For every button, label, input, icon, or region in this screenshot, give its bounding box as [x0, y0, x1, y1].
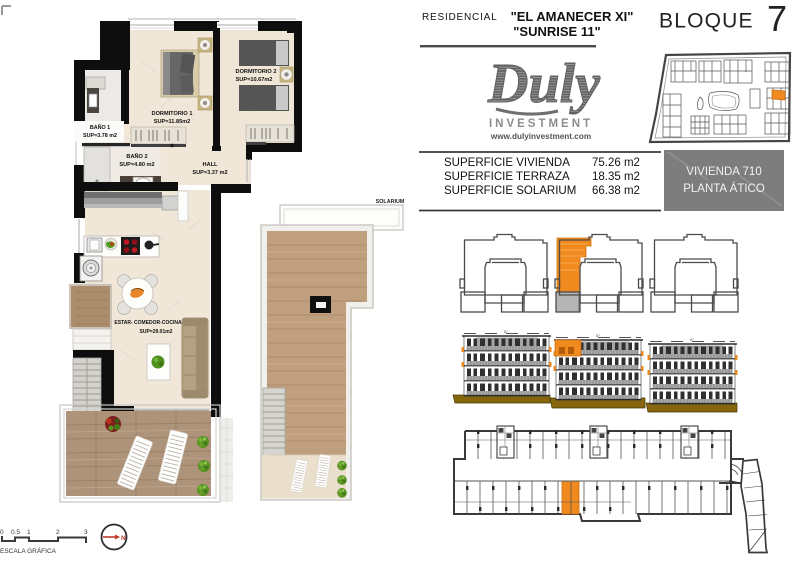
- svg-text:1: 1: [27, 529, 31, 536]
- svg-text:BAÑO 2: BAÑO 2: [126, 153, 147, 160]
- svg-text:18.35 m2: 18.35 m2: [592, 171, 640, 183]
- svg-text:SUPERFICIE TERRAZA: SUPERFICIE TERRAZA: [444, 171, 570, 183]
- svg-text:B7: B7: [690, 338, 694, 342]
- svg-text:2: 2: [56, 529, 60, 536]
- svg-text:B7: B7: [504, 330, 508, 334]
- svg-text:SUP=11.85m2: SUP=11.85m2: [154, 119, 191, 125]
- svg-text:RESIDENCIAL: RESIDENCIAL: [422, 12, 498, 23]
- svg-text:0: 0: [0, 529, 4, 536]
- svg-text:SOLARIUM: SOLARIUM: [376, 199, 405, 205]
- svg-text:DORMITORIO 1: DORMITORIO 1: [152, 111, 193, 117]
- svg-text:SUP=29.01m2: SUP=29.01m2: [140, 329, 173, 335]
- svg-text:ESCALA GRÁFICA: ESCALA GRÁFICA: [0, 546, 57, 555]
- svg-text:75.26 m2: 75.26 m2: [592, 157, 640, 169]
- svg-text:0.5: 0.5: [11, 529, 20, 536]
- svg-text:SUP=10.67m2: SUP=10.67m2: [236, 77, 273, 83]
- svg-text:SUP=3.78 m2: SUP=3.78 m2: [83, 133, 117, 139]
- svg-text:INVESTMENT: INVESTMENT: [489, 118, 593, 130]
- svg-text:Duly: Duly: [487, 53, 601, 115]
- svg-text:DORMITORIO 2: DORMITORIO 2: [236, 69, 277, 75]
- svg-text:N: N: [121, 535, 126, 542]
- svg-text:PLANTA ÁTICO: PLANTA ÁTICO: [683, 182, 765, 195]
- svg-text:"SUNRISE 11": "SUNRISE 11": [513, 24, 600, 39]
- svg-text:3: 3: [84, 529, 88, 536]
- svg-text:BAÑO 1: BAÑO 1: [90, 124, 110, 131]
- svg-text:www.dulyinvestment.com: www.dulyinvestment.com: [490, 132, 591, 141]
- svg-text:ESTAR- COMEDOR-COCINA: ESTAR- COMEDOR-COCINA: [114, 320, 182, 326]
- svg-text:SUP=4.80 m2: SUP=4.80 m2: [119, 162, 154, 168]
- svg-text:SUPERFICIE SOLARIUM: SUPERFICIE SOLARIUM: [444, 185, 576, 197]
- svg-text:HALL: HALL: [203, 162, 218, 168]
- svg-text:66.38 m2: 66.38 m2: [592, 185, 640, 197]
- svg-text:"EL AMANECER XI": "EL AMANECER XI": [511, 9, 634, 24]
- svg-text:SUPERFICIE VIVIENDA: SUPERFICIE VIVIENDA: [444, 157, 570, 169]
- svg-text:7: 7: [767, 0, 787, 39]
- svg-text:SUP=3.37 m2: SUP=3.37 m2: [192, 170, 227, 176]
- svg-text:B7: B7: [596, 334, 600, 338]
- svg-text:BLOQUE: BLOQUE: [659, 10, 754, 33]
- svg-text:VIVIENDA 710: VIVIENDA 710: [686, 166, 761, 178]
